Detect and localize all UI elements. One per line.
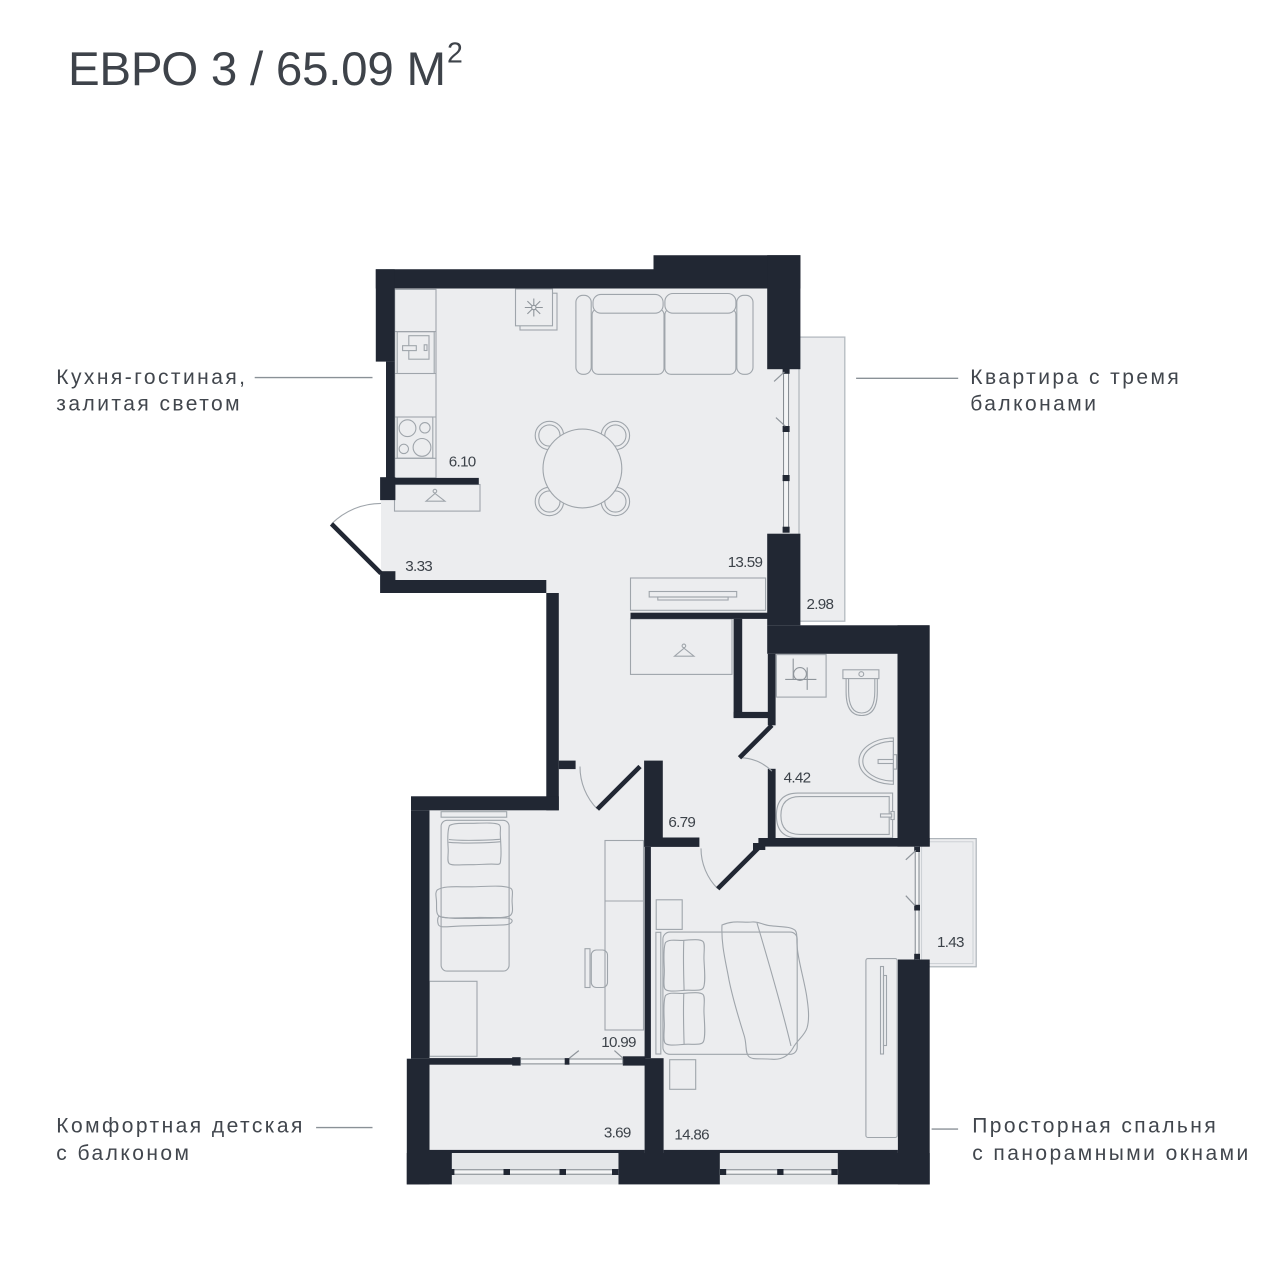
svg-text:10.99: 10.99 (601, 1034, 636, 1051)
svg-text:14.86: 14.86 (674, 1126, 709, 1143)
svg-text:4.42: 4.42 (784, 770, 811, 787)
svg-text:залитая светом: залитая светом (56, 393, 242, 416)
svg-text:1.43: 1.43 (937, 934, 964, 951)
svg-text:балконами: балконами (970, 393, 1098, 416)
svg-text:Комфортная детская: Комфортная детская (56, 1115, 305, 1138)
svg-text:3.69: 3.69 (604, 1124, 631, 1141)
svg-text:13.59: 13.59 (728, 554, 763, 571)
svg-text:с панорамными окнами: с панорамными окнами (972, 1142, 1250, 1165)
svg-text:Кухня-гостиная,: Кухня-гостиная, (56, 366, 247, 389)
svg-text:2.98: 2.98 (807, 596, 834, 613)
svg-text:с балконом: с балконом (56, 1142, 191, 1165)
svg-text:6.79: 6.79 (668, 814, 695, 831)
svg-text:3.33: 3.33 (405, 558, 432, 575)
svg-text:6.10: 6.10 (449, 454, 476, 471)
svg-text:ЕВРО 3 / 65.09 М: ЕВРО 3 / 65.09 М (68, 43, 446, 96)
svg-text:2: 2 (447, 38, 463, 70)
svg-text:Квартира с тремя: Квартира с тремя (970, 366, 1181, 389)
svg-text:Просторная спальня: Просторная спальня (972, 1115, 1218, 1138)
